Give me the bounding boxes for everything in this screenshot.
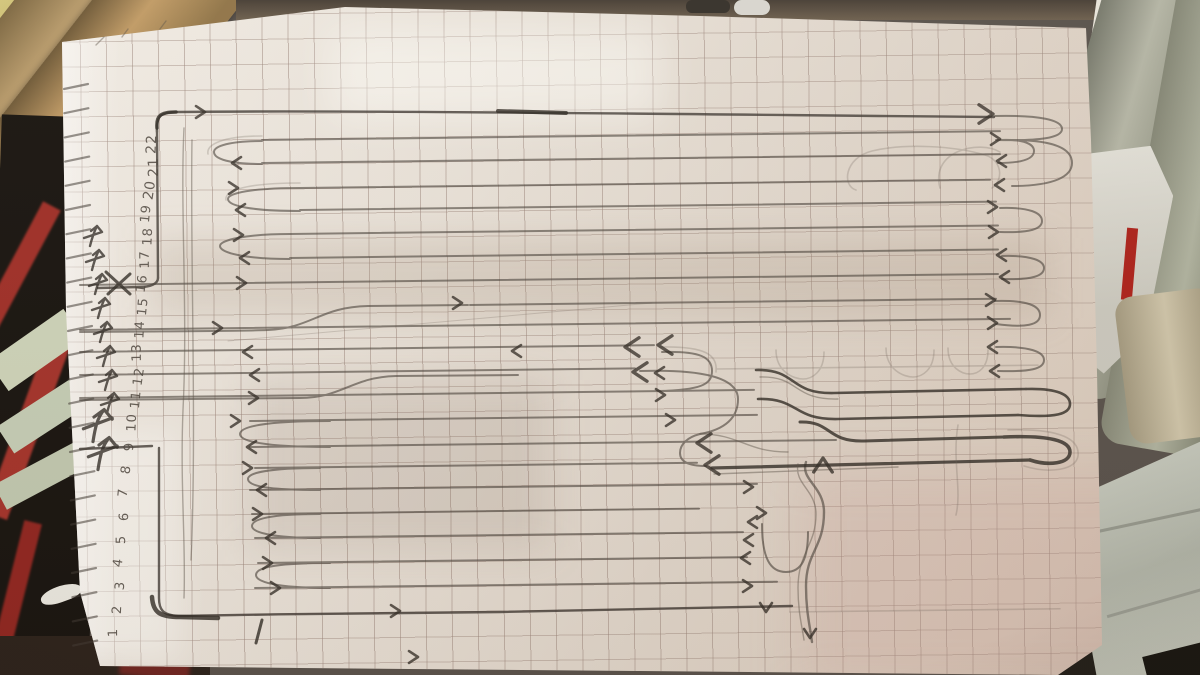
row-number: 5	[114, 535, 129, 544]
row-number: 19	[138, 203, 155, 223]
row-numbers: 1 2 3 4 5 6 7 8 9 10 11 12 13 14 15 16 1…	[0, 0, 1200, 675]
row-number: 18	[140, 227, 156, 246]
row-number: 1	[106, 628, 121, 637]
photo-of-pipe-layout-sketch: 1 2 3 4 5 6 7 8 9 10 11 12 13 14 15 16 1…	[0, 0, 1200, 675]
row-number: 16	[133, 273, 151, 294]
row-number: 13	[130, 344, 145, 363]
row-number: 2	[109, 604, 124, 614]
row-number: 20	[141, 179, 160, 201]
row-number: 3	[112, 581, 128, 592]
row-number: 10	[125, 413, 141, 432]
row-number: 11	[127, 390, 144, 410]
row-number: 9	[122, 441, 137, 450]
row-number: 4	[111, 557, 127, 568]
row-number: 21	[145, 157, 161, 177]
row-number: 15	[135, 296, 152, 316]
row-number: 14	[133, 320, 149, 339]
row-number: 17	[137, 250, 152, 269]
row-number: 22	[143, 133, 160, 154]
row-number: 8	[118, 464, 134, 475]
row-number: 7	[115, 487, 131, 498]
row-number: 6	[117, 511, 132, 521]
row-number: 12	[130, 366, 148, 387]
